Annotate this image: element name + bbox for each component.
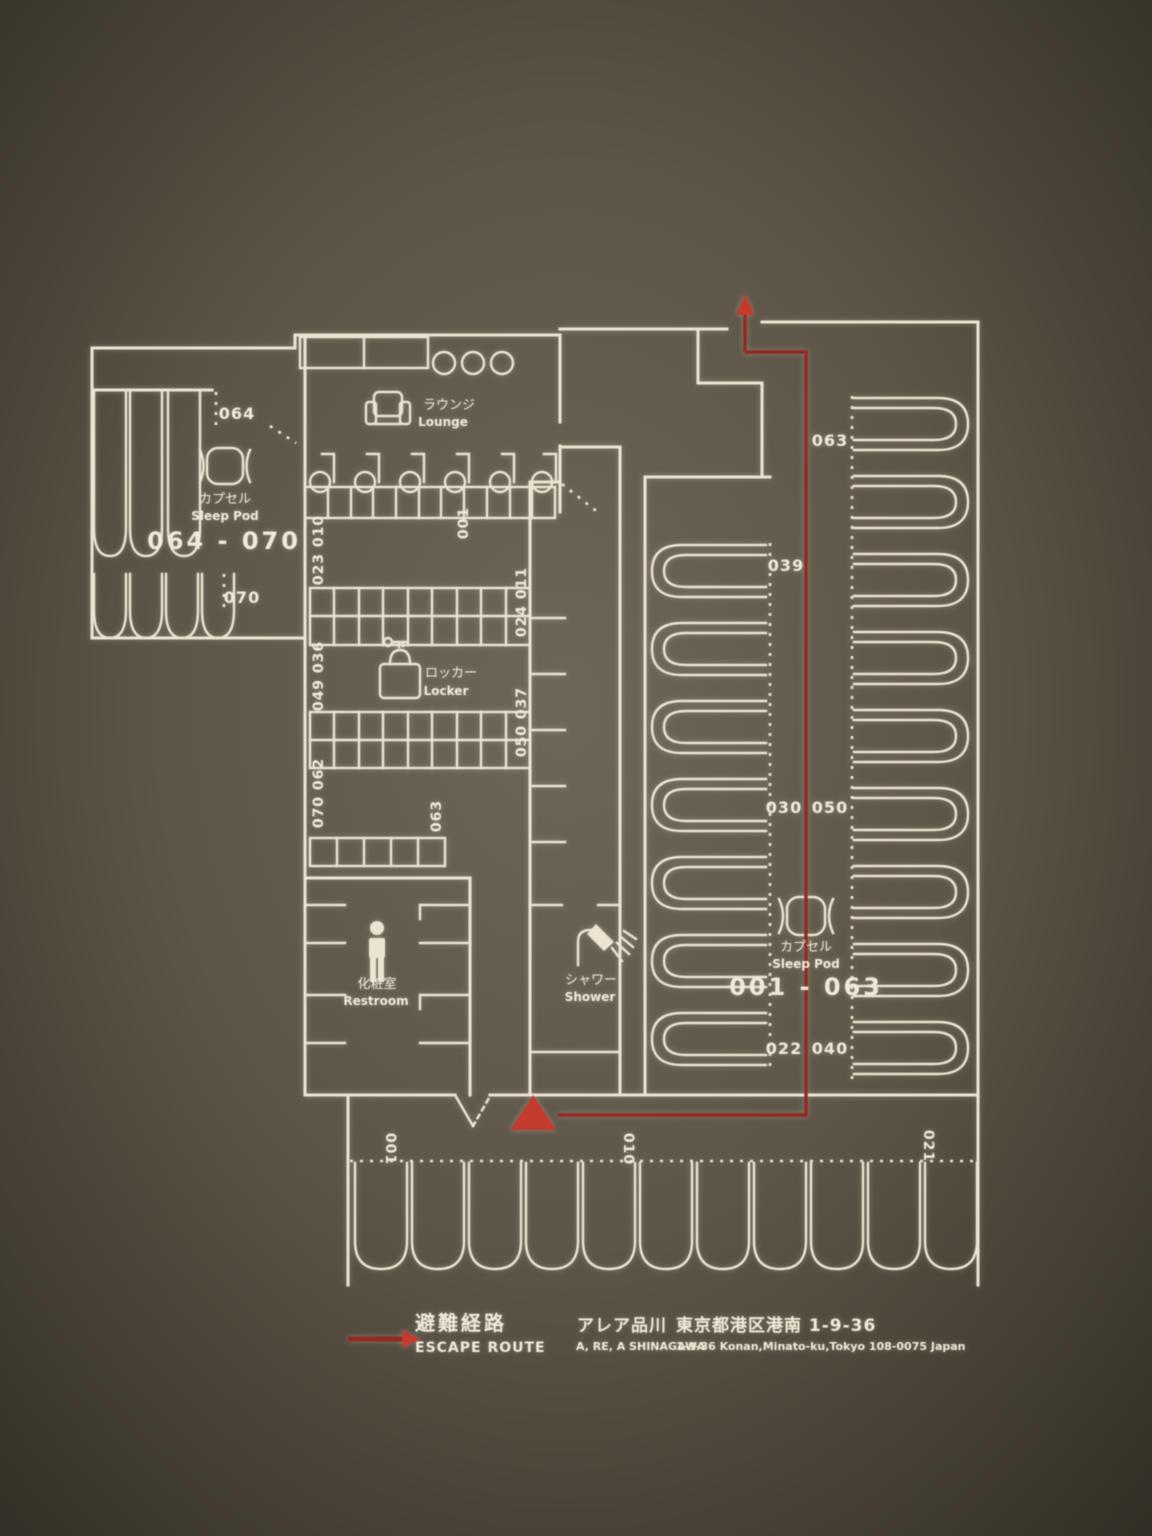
locker-left-label-1: 023 010: [311, 515, 327, 585]
legend-facility-jp: アレア品川: [577, 1316, 667, 1336]
label-restroom-jp: 化粧室: [357, 976, 396, 992]
label-sleep-pod-left-range: 064 - 070: [147, 527, 301, 555]
hall-label-050: 050: [812, 798, 848, 817]
hall-label-040: 040: [812, 1039, 848, 1058]
legend-escape-route-en: ESCAPE ROUTE: [415, 1340, 546, 1356]
sign-photo: 064 070 カプセル Sleep Pod 064 - 070 ラウンジ Lo…: [0, 0, 1152, 1536]
label-locker-en: Locker: [424, 684, 469, 698]
floor-plan-svg: 064 070 カプセル Sleep Pod 064 - 070 ラウンジ Lo…: [0, 0, 1152, 1536]
label-shower-jp: シャワー: [565, 973, 617, 988]
label-restroom-en: Restroom: [343, 994, 408, 1008]
label-lounge-en: Lounge: [418, 415, 468, 429]
label-sleep-pod-main-range: 001 - 063: [729, 973, 883, 1001]
legend-escape-route-jp: 避難経路: [415, 1311, 507, 1335]
label-sleep-pod-main-jp: カプセル: [780, 940, 832, 955]
label-locker-jp: ロッカー: [425, 666, 477, 681]
label-sleep-pod-main-en: Sleep Pod: [772, 957, 839, 971]
hall-label-039: 039: [768, 556, 804, 575]
locker-left-label-3: 070 062: [311, 758, 327, 828]
locker-right-label-4: 063: [429, 800, 445, 832]
locker-right-label-2: 024 011: [514, 567, 530, 637]
bottom-label-021: 021: [920, 1130, 936, 1162]
legend-address-en: 1-9-36 Konan,Minato-ku,Tokyo 108-0075 Ja…: [676, 1340, 966, 1353]
locker-left-label-2: 049 036: [311, 641, 327, 711]
legend-address-jp: 東京都港区港南 1-9-36: [676, 1315, 876, 1336]
bottom-label-001: 001: [382, 1133, 398, 1165]
label-sleep-pod-left-en: Sleep Pod: [191, 509, 258, 523]
legend: 避難経路 ESCAPE ROUTE アレア品川 A, RE, A SHINAGA…: [348, 1311, 966, 1356]
hall-label-063: 063: [812, 431, 848, 450]
pod-label-064: 064: [219, 404, 255, 423]
hall-label-022: 022: [766, 1039, 802, 1058]
locker-right-label-1: 001: [456, 507, 472, 539]
pod-label-070: 070: [224, 588, 260, 607]
bottom-label-010: 010: [620, 1133, 636, 1165]
locker-right-label-3: 050 037: [514, 687, 530, 757]
label-sleep-pod-left-jp: カプセル: [199, 492, 251, 507]
label-shower-en: Shower: [565, 990, 616, 1004]
hall-label-030: 030: [766, 798, 802, 817]
label-lounge-jp: ラウンジ: [423, 398, 475, 413]
